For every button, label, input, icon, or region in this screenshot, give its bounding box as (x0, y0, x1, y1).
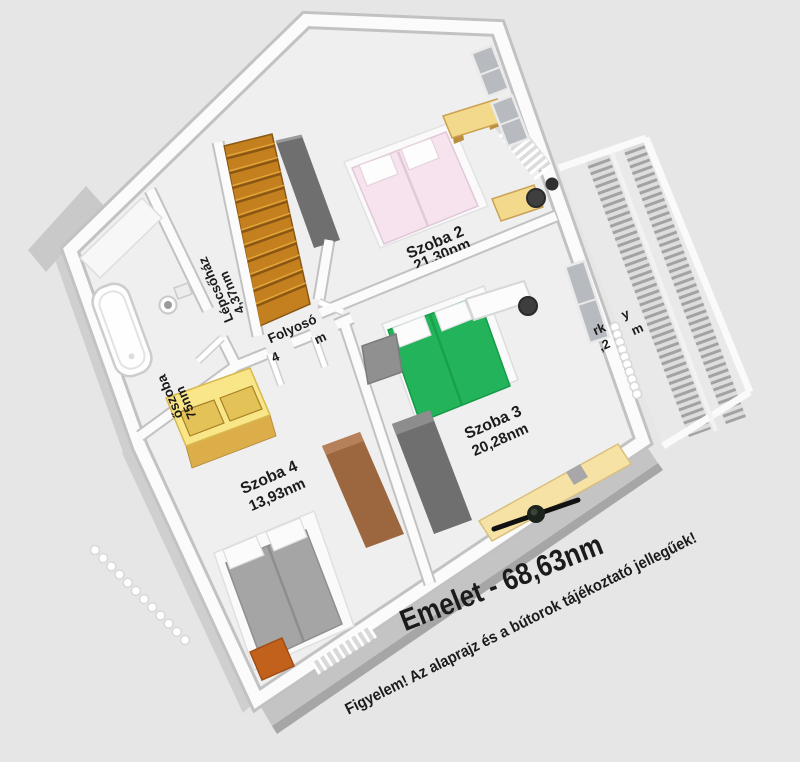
railing-dot (115, 570, 124, 579)
floorplan-canvas: 21,30nm Szoba 2 Szoba 3 20,28nm Szoba 4 … (0, 0, 800, 762)
railing-dot (148, 603, 157, 612)
desk-chair (519, 297, 537, 315)
railing-dot (131, 586, 140, 595)
railing-dot (164, 619, 173, 628)
railing-dot (99, 554, 108, 563)
railing-dot (123, 578, 132, 587)
floorplan-view: 21,30nm Szoba 2 Szoba 3 20,28nm Szoba 4 … (0, 0, 800, 762)
desk-chair (527, 189, 545, 207)
railing-dot (156, 611, 165, 620)
railing-dot (633, 390, 642, 399)
railing-dot (172, 627, 181, 636)
railing-dot (107, 562, 116, 571)
railing-dot (140, 595, 149, 604)
waste-bin (546, 178, 559, 191)
railing-dot (181, 636, 190, 645)
railing-dot (91, 546, 100, 555)
